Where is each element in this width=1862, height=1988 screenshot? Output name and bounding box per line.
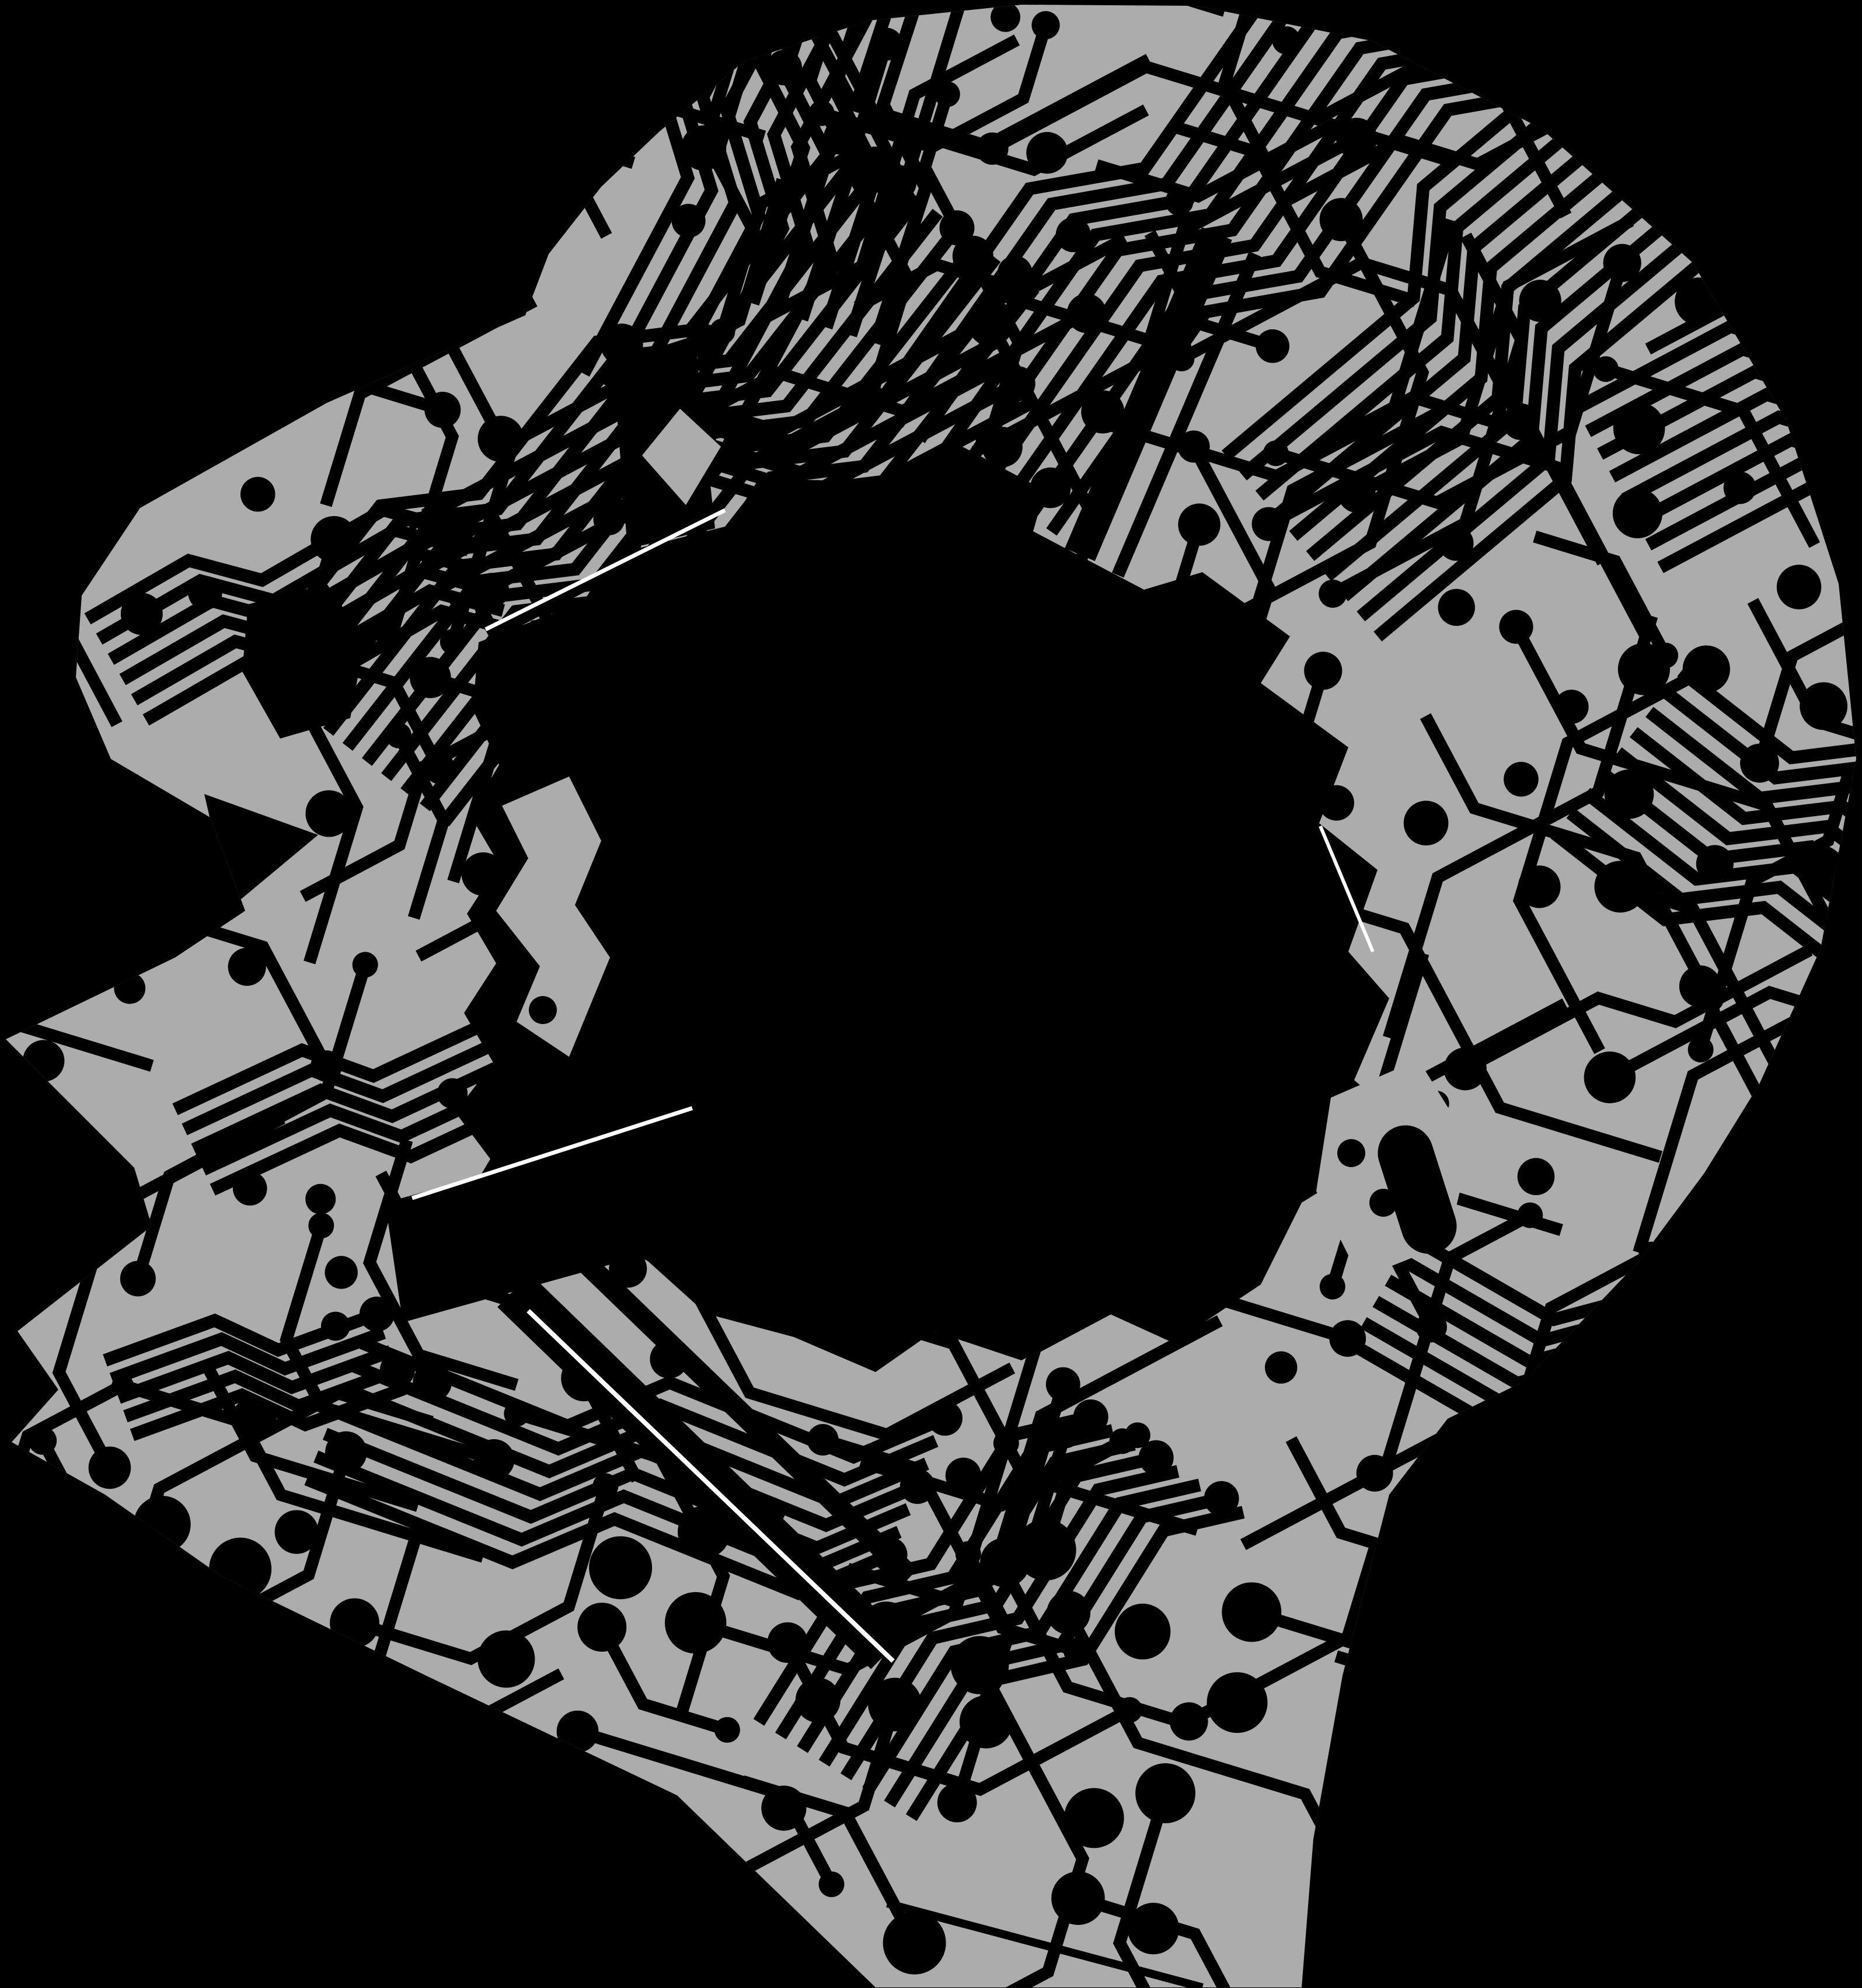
via-dot: [592, 1473, 618, 1499]
via-dot: [1063, 1638, 1089, 1663]
via-dot: [672, 204, 706, 238]
via-dot: [1688, 1037, 1714, 1063]
via-dot: [477, 1630, 535, 1687]
via-dot: [1046, 1367, 1080, 1402]
via-dot: [1584, 1052, 1636, 1103]
via-dot: [1683, 645, 1730, 692]
via-dot: [1051, 1871, 1105, 1925]
via-dot: [1416, 1311, 1447, 1342]
via-dot: [589, 1536, 652, 1599]
circuit-head-svg: [0, 0, 1862, 1987]
via-dot: [473, 1439, 514, 1480]
via-dot: [594, 504, 625, 535]
via-dot: [1125, 1422, 1150, 1448]
via-dot: [710, 319, 735, 344]
via-dot: [1329, 1320, 1366, 1357]
via-dot: [440, 629, 466, 654]
via-dot: [1135, 1763, 1195, 1823]
via-dot: [1178, 503, 1220, 545]
via-dot: [1056, 217, 1091, 252]
via-dot: [761, 1785, 806, 1830]
via-dot: [993, 1430, 1019, 1456]
via-dot: [681, 126, 727, 171]
via-dot: [1338, 475, 1375, 513]
via-dot: [577, 1603, 626, 1652]
via-dot: [1613, 489, 1662, 538]
via-dot: [1337, 1139, 1365, 1167]
via-dot: [1518, 865, 1561, 908]
via-dot: [819, 1871, 845, 1897]
via-dot: [89, 1447, 131, 1489]
via-dot: [1499, 610, 1533, 643]
via-dot: [321, 1312, 350, 1341]
via-dot: [1444, 1047, 1487, 1090]
via-dot: [1679, 965, 1721, 1007]
via-dot: [1207, 1672, 1268, 1733]
via-dot: [120, 1261, 156, 1297]
via-dot: [311, 1050, 342, 1082]
via-dot: [1320, 198, 1363, 241]
via-dot: [477, 416, 524, 462]
via-dot: [714, 1717, 740, 1743]
via-dot: [935, 81, 960, 107]
via-dot: [1256, 329, 1289, 363]
via-dot: [1502, 403, 1539, 440]
via-dot: [1265, 1351, 1297, 1383]
via-dot: [953, 236, 993, 277]
via-dot: [1319, 580, 1347, 608]
via-dot: [1517, 1202, 1543, 1228]
via-dot: [413, 1363, 452, 1402]
via-dot: [29, 1426, 57, 1454]
via-dot: [240, 477, 276, 512]
via-dot: [868, 1678, 922, 1732]
via-dot: [1504, 762, 1539, 797]
via-dot: [960, 1695, 1013, 1749]
via-dot: [1263, 440, 1289, 466]
via-dot: [1115, 1604, 1171, 1660]
via-dot: [1605, 770, 1654, 819]
via-dot: [311, 516, 357, 563]
via-dot: [1800, 682, 1847, 730]
via-dot: [305, 790, 352, 837]
via-dot: [807, 1424, 839, 1456]
via-dot: [1357, 1455, 1393, 1492]
via-dot: [275, 1510, 319, 1554]
via-dot: [1613, 402, 1665, 454]
via-dot: [1064, 1788, 1124, 1848]
via-dot: [1595, 861, 1647, 913]
via-dot: [325, 1256, 357, 1289]
via-dot: [1439, 525, 1474, 560]
via-dot: [504, 1401, 529, 1426]
via-dot: [1336, 118, 1377, 159]
via-dot: [859, 385, 885, 410]
via-dot: [1128, 1903, 1179, 1954]
via-dot: [1304, 652, 1342, 690]
via-dot: [424, 392, 461, 428]
via-dot: [188, 576, 222, 610]
via-dot: [386, 723, 412, 748]
via-dot: [768, 1623, 808, 1663]
via-dot: [376, 624, 405, 652]
via-dot: [529, 996, 557, 1024]
via-dot: [1047, 1591, 1090, 1635]
via-dot: [882, 185, 916, 220]
via-dot: [1050, 1418, 1080, 1448]
via-dot: [1170, 1702, 1208, 1741]
via-dot: [1272, 26, 1300, 54]
via-dot: [951, 1636, 1009, 1694]
via-dot: [1222, 1582, 1281, 1642]
via-dot: [1603, 244, 1641, 282]
via-dot: [946, 1458, 981, 1493]
via-dot: [353, 952, 378, 977]
via-dot: [1026, 132, 1068, 173]
via-dot: [1117, 1697, 1142, 1723]
via-dot: [796, 1678, 841, 1723]
via-dot: [1518, 1158, 1555, 1195]
via-dot: [1031, 11, 1059, 39]
via-dot: [852, 147, 898, 193]
via-dot: [1015, 1519, 1076, 1580]
via-dot: [1067, 294, 1107, 333]
via-dot: [1438, 589, 1475, 626]
via-dot: [766, 50, 802, 85]
circuit-head-illustration: Silhouette of a human head in left profi…: [0, 0, 1862, 1987]
via-dot: [424, 753, 455, 784]
via-dot: [809, 100, 835, 126]
via-dot: [665, 1592, 726, 1653]
via-dot: [1519, 280, 1561, 322]
via-dot: [956, 1541, 981, 1567]
via-dot: [937, 1782, 977, 1822]
via-dot: [1320, 1274, 1345, 1300]
via-dot: [308, 1213, 334, 1238]
via-dot: [1740, 744, 1779, 783]
via-dot: [870, 28, 902, 61]
via-dot: [1554, 690, 1589, 724]
via-dot: [1252, 507, 1286, 541]
via-dot: [410, 657, 451, 698]
via-dot: [1593, 356, 1619, 382]
via-dot: [121, 593, 163, 635]
via-dot: [233, 1171, 267, 1206]
via-dot: [968, 301, 1013, 347]
connector-notch: [1406, 1153, 1429, 1226]
via-dot: [1618, 643, 1670, 695]
via-dot: [883, 1912, 946, 1975]
via-dot: [1724, 472, 1756, 504]
via-dot: [305, 1184, 336, 1214]
via-dot: [1404, 800, 1449, 845]
via-dot: [232, 1397, 276, 1441]
via-dot: [976, 133, 1008, 165]
via-dot: [1696, 845, 1734, 882]
via-dot: [1165, 187, 1193, 215]
via-dot: [1777, 565, 1821, 609]
via-dot: [228, 948, 266, 986]
via-dot: [325, 1432, 367, 1474]
via-dot: [380, 1353, 415, 1388]
